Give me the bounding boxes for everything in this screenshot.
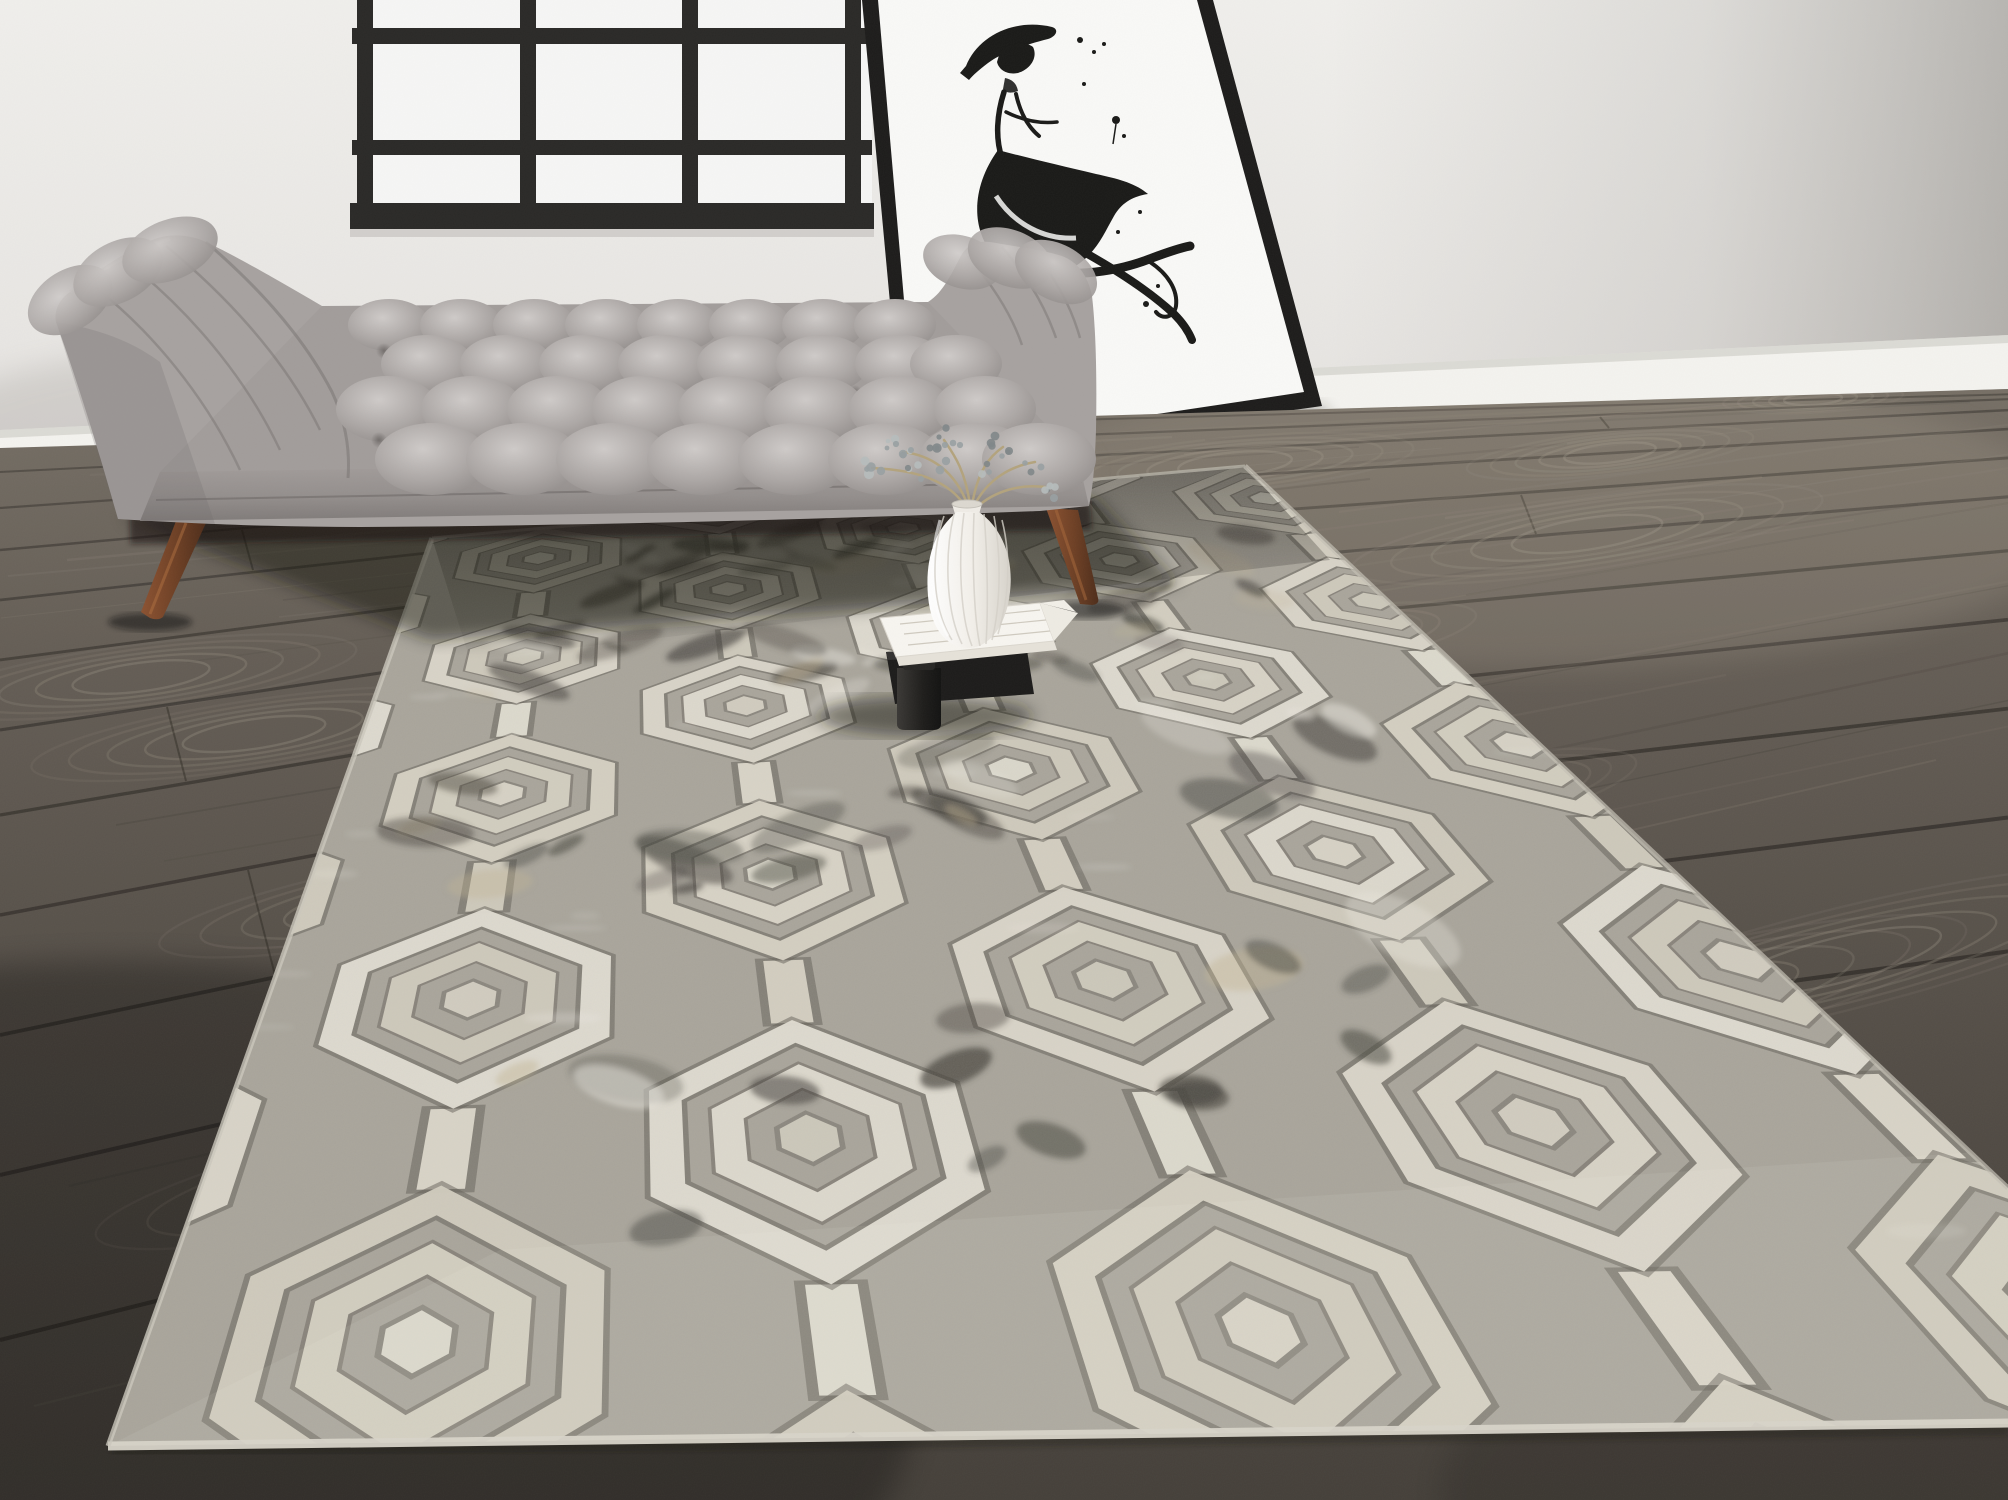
room-scene — [0, 0, 2008, 1500]
photo-grain — [0, 0, 2008, 1500]
